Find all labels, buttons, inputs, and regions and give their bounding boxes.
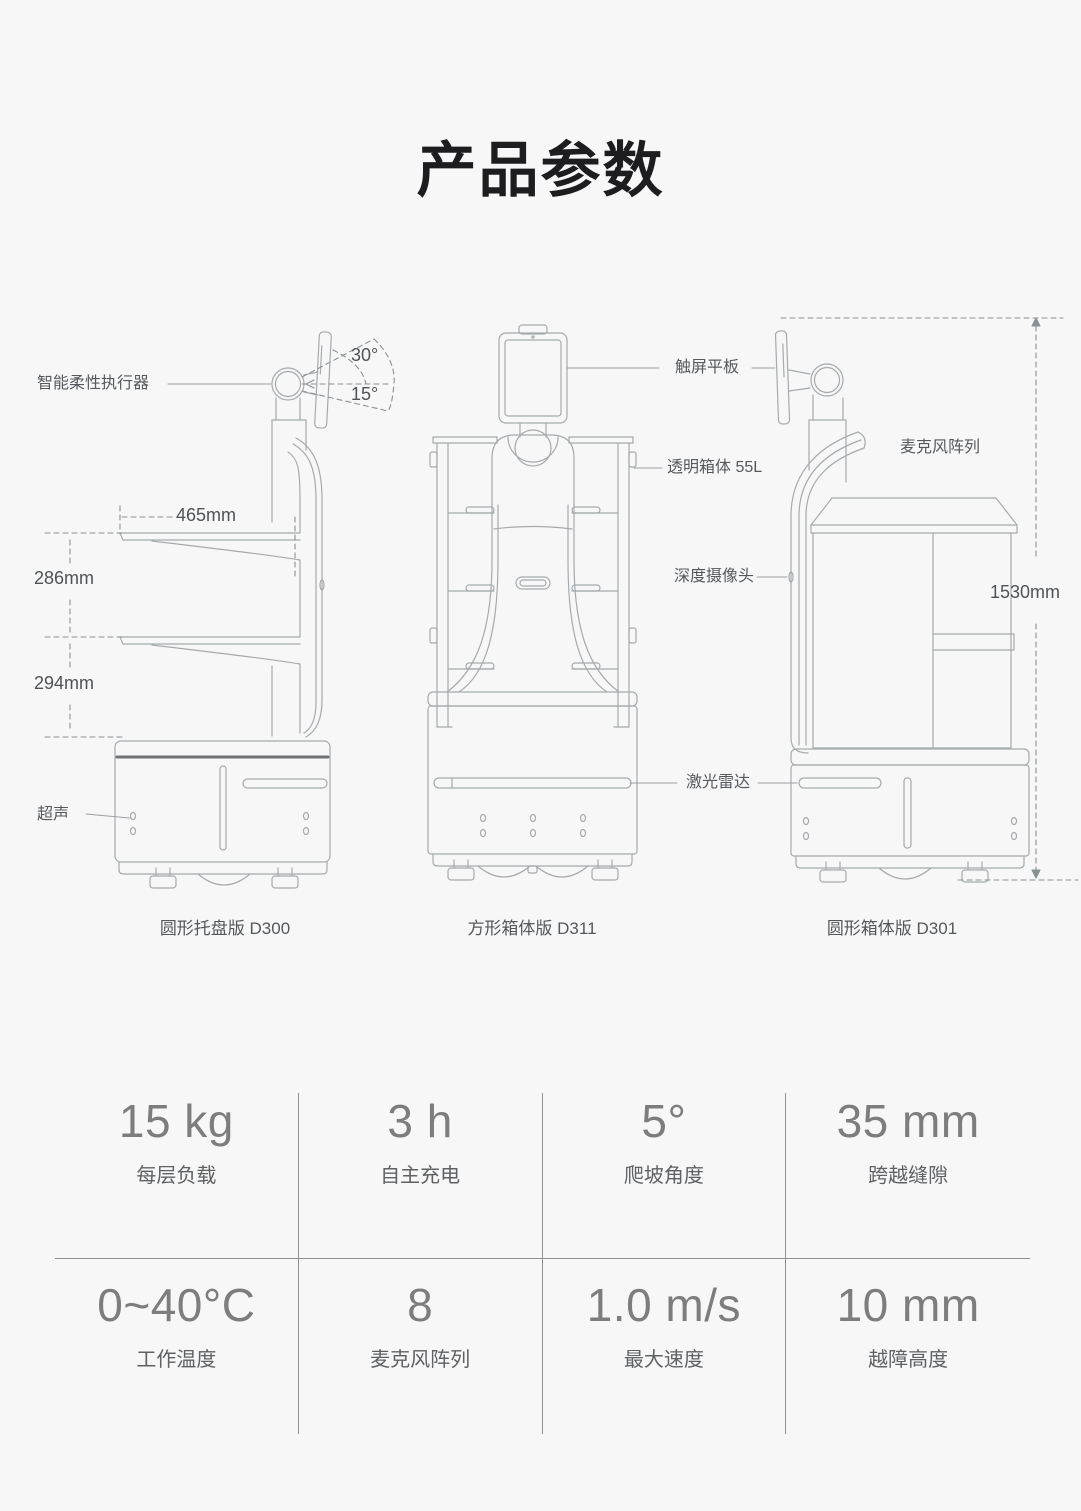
callout-lines (86, 368, 797, 818)
spec-max-speed-value: 1.0 m/s (587, 1279, 741, 1331)
robot-d301-drawing (775, 331, 1029, 882)
spec-max-speed: 1.0 m/s 最大速度 (543, 1259, 787, 1434)
spec-load: 15 kg 每层负载 (55, 1093, 299, 1259)
dimension-tilt-down: 15° (351, 384, 378, 404)
caption-d311: 方形箱体版 D311 (412, 914, 652, 939)
robot-d311-drawing (428, 325, 637, 880)
dimension-total-height: 1530mm (990, 582, 1060, 602)
spec-mic-array-label: 麦克风阵列 (370, 1347, 470, 1373)
dimension-gap-lower: 294mm (34, 673, 94, 693)
product-spec-page: 产品参数 (0, 0, 1081, 1511)
spec-grid: 15 kg 每层负载 3 h 自主充电 5° 爬坡角度 35 mm 跨越缝隙 0… (55, 1093, 1030, 1434)
spec-load-label: 每层负载 (136, 1163, 216, 1189)
robot-line-art (0, 0, 1081, 980)
spec-gap-crossing: 35 mm 跨越缝隙 (786, 1093, 1030, 1259)
spec-temperature-label: 工作温度 (136, 1347, 216, 1373)
caption-d300: 圆形托盘版 D300 (105, 914, 345, 939)
dimension-tray-width: 465mm (176, 505, 236, 525)
spec-climb-angle: 5° 爬坡角度 (543, 1093, 787, 1259)
dimension-tilt-up: 30° (351, 345, 378, 365)
spec-obstacle-height-label: 越障高度 (868, 1347, 948, 1373)
spec-temperature-value: 0~40°C (97, 1279, 255, 1331)
product-diagram: 智能柔性执行器 465mm 286mm 294mm 超声 30° 15° 触屏平… (0, 0, 1081, 980)
callout-ultrasonic-label: 超声 (37, 805, 69, 825)
spec-mic-array-value: 8 (407, 1279, 433, 1331)
spec-charging: 3 h 自主充电 (299, 1093, 543, 1259)
callout-lidar-label: 激光雷达 (681, 773, 755, 793)
spec-temperature: 0~40°C 工作温度 (55, 1259, 299, 1434)
spec-load-value: 15 kg (119, 1095, 234, 1147)
callout-touchscreen-label: 触屏平板 (664, 358, 750, 378)
callout-transparent-box-label: 透明箱体 55L (667, 458, 762, 478)
dimension-gap-upper: 286mm (34, 568, 94, 588)
spec-obstacle-height-value: 10 mm (837, 1279, 980, 1331)
spec-climb-angle-value: 5° (641, 1095, 686, 1147)
spec-mic-array: 8 麦克风阵列 (299, 1259, 543, 1434)
callout-mic-array-label: 麦克风阵列 (900, 438, 980, 458)
spec-gap-crossing-label: 跨越缝隙 (868, 1163, 948, 1189)
callout-actuator-label: 智能柔性执行器 (37, 374, 149, 394)
spec-charging-label: 自主充电 (380, 1163, 460, 1189)
callout-depth-camera-label: 深度摄像头 (674, 567, 754, 587)
spec-gap-crossing-value: 35 mm (837, 1095, 980, 1147)
spec-max-speed-label: 最大速度 (624, 1347, 704, 1373)
spec-climb-angle-label: 爬坡角度 (624, 1163, 704, 1189)
spec-obstacle-height: 10 mm 越障高度 (786, 1259, 1030, 1434)
robot-d300-drawing (115, 332, 332, 888)
caption-d301: 圆形箱体版 D301 (772, 914, 1012, 939)
spec-charging-value: 3 h (387, 1095, 452, 1147)
